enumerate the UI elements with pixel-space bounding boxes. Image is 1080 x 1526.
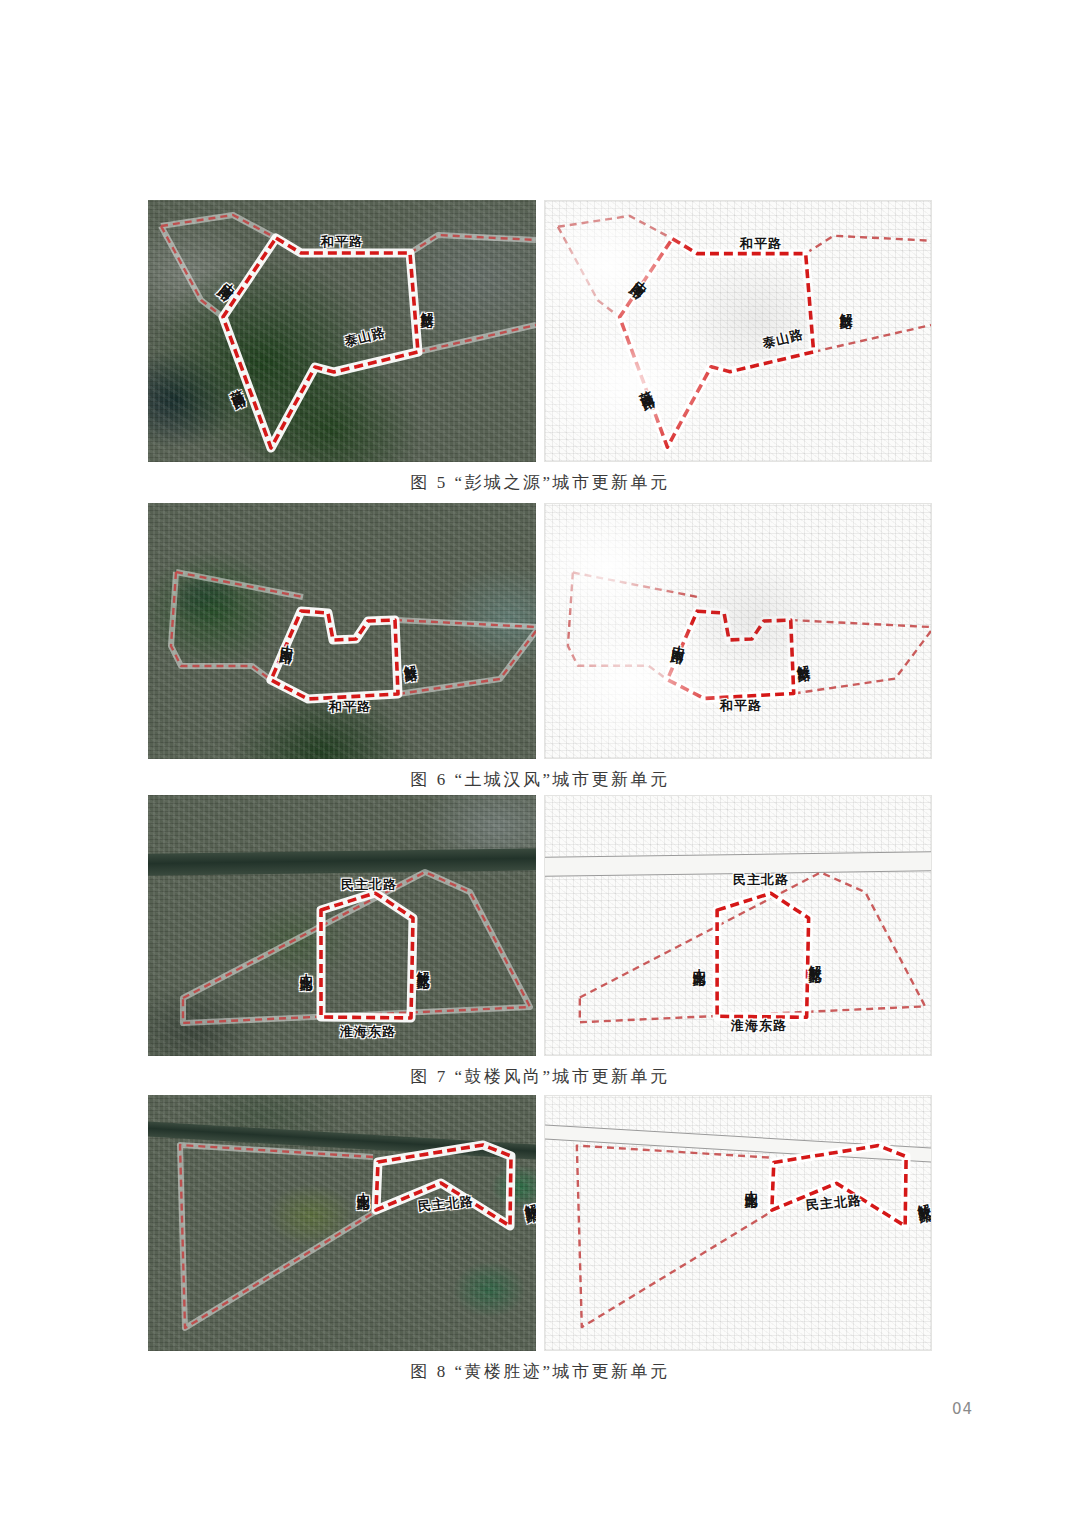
- figure-8-plan-map: 中山北路 民主北路 解放北路: [544, 1095, 932, 1351]
- road-label: 和平路: [321, 235, 363, 249]
- road-label: 民主北路: [733, 873, 789, 887]
- figure-8-caption: 图 8 “黄楼胜迹”城市更新单元: [148, 1360, 932, 1383]
- figure-8-map-pair: 中山北路 民主北路 解放北路 中山北路 民主北路 解放北路: [148, 1095, 932, 1351]
- figure-7: 民主北路 中山北路 解放北路 淮海东路 民主北路 中山北路 解放北路 淮海东路 …: [148, 795, 932, 1088]
- road-label: 中山北路: [692, 958, 706, 966]
- figure-8-satellite-map: 中山北路 民主北路 解放北路: [148, 1095, 536, 1351]
- figure-5: 中山南路 和平路 解放路 泰山路 苏堤南路 中山南路 和平路 解放路 泰山路 苏…: [148, 200, 932, 494]
- figure-7-satellite-map: 民主北路 中山北路 解放北路 淮海东路: [148, 795, 536, 1056]
- outer-boundary-line: [568, 572, 931, 693]
- outer-boundary-line: [180, 1145, 378, 1328]
- unit-boundary-halo: [271, 611, 398, 699]
- figure-5-caption: 图 5 “彭城之源”城市更新单元: [148, 471, 932, 494]
- unit-boundary-halo: [717, 893, 809, 1017]
- figure-8: 中山北路 民主北路 解放北路 中山北路 民主北路 解放北路 图 8 “黄楼胜迹”…: [148, 1095, 932, 1383]
- boundary-overlay: [545, 1096, 931, 1350]
- outer-boundary-halo: [171, 572, 536, 694]
- unit-boundary-halo: [667, 611, 793, 698]
- document-page: 中山南路 和平路 解放路 泰山路 苏堤南路 中山南路 和平路 解放路 泰山路 苏…: [0, 0, 1080, 1526]
- road-label: 解放路: [794, 654, 808, 662]
- road-label: 中山北路: [356, 1182, 370, 1190]
- road-label: 中山南路: [673, 634, 688, 645]
- page-number: 04: [952, 1400, 973, 1418]
- figure-6-satellite-map: 中山南路 解放路 和平路: [148, 503, 536, 759]
- figure-5-map-pair: 中山南路 和平路 解放路 泰山路 苏堤南路 中山南路 和平路 解放路 泰山路 苏…: [148, 200, 932, 462]
- road-label: 中山北路: [744, 1180, 758, 1188]
- boundary-overlay: [545, 796, 931, 1055]
- outer-boundary-line: [577, 1146, 774, 1328]
- road-label: 和平路: [720, 699, 762, 713]
- road-label: 解放北路: [416, 961, 430, 969]
- figure-7-plan-map: 民主北路 中山北路 解放北路 淮海东路: [544, 795, 932, 1056]
- outer-boundary-line: [171, 572, 536, 694]
- figure-6-plan-map: 中山南路 解放路 和平路: [544, 503, 932, 759]
- boundary-overlay: [148, 1095, 536, 1351]
- road-label: 中山北路: [299, 963, 313, 971]
- road-label: 解放路: [839, 303, 853, 309]
- boundary-overlay: [545, 201, 931, 461]
- road-label: 和平路: [740, 237, 782, 251]
- figure-7-map-pair: 民主北路 中山北路 解放北路 淮海东路 民主北路 中山北路 解放北路 淮海东路: [148, 795, 932, 1056]
- road-label: 和平路: [329, 700, 371, 714]
- road-label: 淮海东路: [731, 1019, 787, 1033]
- unit-boundary-line: [667, 611, 793, 698]
- road-label: 解放北路: [808, 955, 822, 963]
- road-label: 民主北路: [341, 878, 397, 892]
- road-label: 泰山路: [761, 327, 805, 350]
- road-label: 解放路: [420, 302, 434, 308]
- boundary-overlay: [148, 795, 536, 1056]
- figure-7-caption: 图 7 “鼓楼风尚”城市更新单元: [148, 1065, 932, 1088]
- unit-boundary-halo: [223, 238, 418, 448]
- figure-6: 中山南路 解放路 和平路 中山南路 解放路 和平路 图 6 “土城汉风”城市更新…: [148, 503, 932, 791]
- figure-6-map-pair: 中山南路 解放路 和平路 中山南路 解放路 和平路: [148, 503, 932, 759]
- boundary-overlay: [545, 504, 931, 758]
- unit-boundary-halo: [321, 893, 413, 1018]
- road-label: 中山南路: [641, 270, 656, 285]
- road-label: 淮海东路: [340, 1025, 396, 1039]
- road-label: 苏堤南路: [633, 380, 649, 393]
- figure-6-caption: 图 6 “土城汉风”城市更新单元: [148, 768, 932, 791]
- figure-5-satellite-map: 中山南路 和平路 解放路 泰山路 苏堤南路: [148, 200, 536, 462]
- figure-5-plan-map: 中山南路 和平路 解放路 泰山路 苏堤南路: [544, 200, 932, 462]
- boundary-overlay: [148, 503, 536, 759]
- outer-boundary-halo: [180, 1145, 378, 1328]
